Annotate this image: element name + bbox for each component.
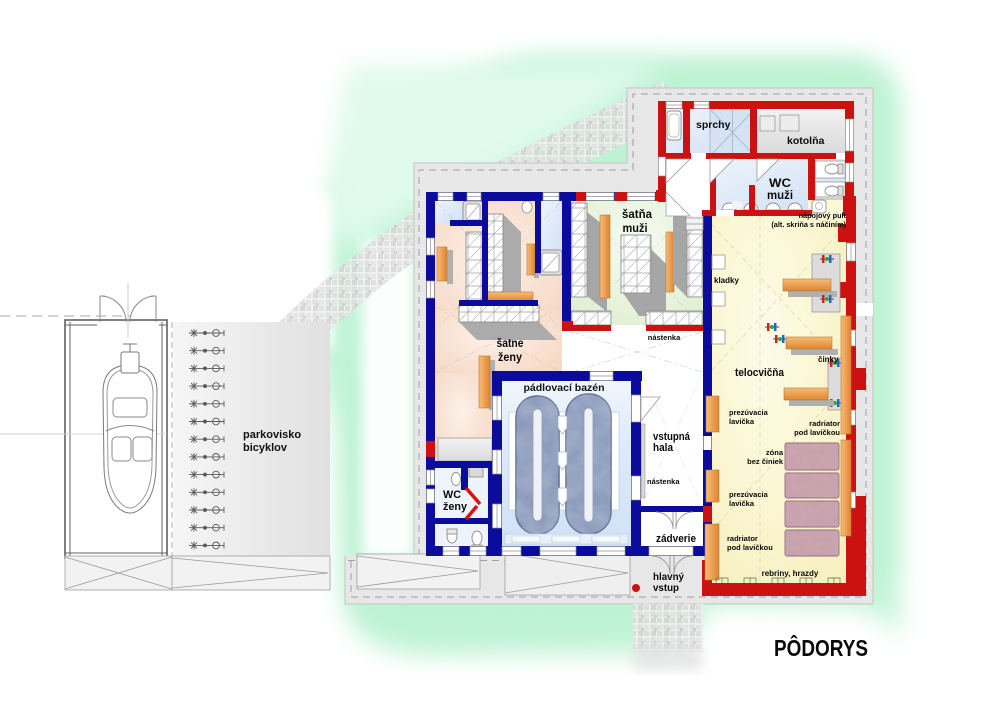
svg-text:prezúvacia: prezúvacia	[729, 408, 769, 417]
svg-text:pod lavičkou: pod lavičkou	[727, 543, 773, 552]
svg-text:zóna: zóna	[766, 448, 784, 457]
svg-text:sprchy: sprchy	[696, 119, 731, 131]
svg-text:bicyklov: bicyklov	[243, 442, 288, 454]
svg-text:kotolňa: kotolňa	[787, 135, 824, 147]
svg-text:WC: WC	[769, 178, 791, 190]
svg-text:pod lavičkou: pod lavičkou	[794, 428, 840, 437]
svg-text:telocvičňa: telocvičňa	[735, 367, 785, 379]
svg-text:WC: WC	[443, 489, 461, 501]
svg-text:nástenka: nástenka	[648, 333, 681, 342]
svg-text:prezúvacia: prezúvacia	[729, 490, 769, 499]
svg-text:radriator: radriator	[727, 534, 758, 543]
svg-text:rebriny, hrazdy: rebriny, hrazdy	[762, 569, 819, 578]
svg-text:muži: muži	[623, 223, 648, 235]
svg-text:nástenka: nástenka	[647, 477, 680, 486]
svg-text:vstup: vstup	[653, 582, 679, 594]
svg-text:lavička: lavička	[729, 499, 755, 508]
svg-text:šatňa: šatňa	[622, 209, 653, 221]
svg-text:ženy: ženy	[498, 352, 523, 364]
svg-text:bez činiek: bez činiek	[747, 457, 784, 466]
svg-text:muži: muži	[767, 190, 793, 202]
svg-text:hala: hala	[653, 442, 674, 454]
svg-text:činky: činky	[818, 355, 839, 364]
svg-text:kladky: kladky	[714, 276, 739, 285]
svg-text:parkovisko: parkovisko	[243, 429, 301, 441]
svg-text:lavička: lavička	[729, 417, 755, 426]
svg-text:PÔDORYS: PÔDORYS	[774, 634, 868, 661]
svg-text:zádverie: zádverie	[656, 533, 696, 545]
svg-text:šatne: šatne	[497, 338, 524, 350]
svg-text:nápojový pult: nápojový pult	[799, 211, 847, 220]
svg-text:radriator: radriator	[809, 419, 840, 428]
svg-text:ženy: ženy	[443, 501, 468, 513]
svg-text:(alt. skriňa s náčiním): (alt. skriňa s náčiním)	[771, 220, 846, 229]
svg-text:pádlovací bazén: pádlovací bazén	[523, 382, 604, 394]
